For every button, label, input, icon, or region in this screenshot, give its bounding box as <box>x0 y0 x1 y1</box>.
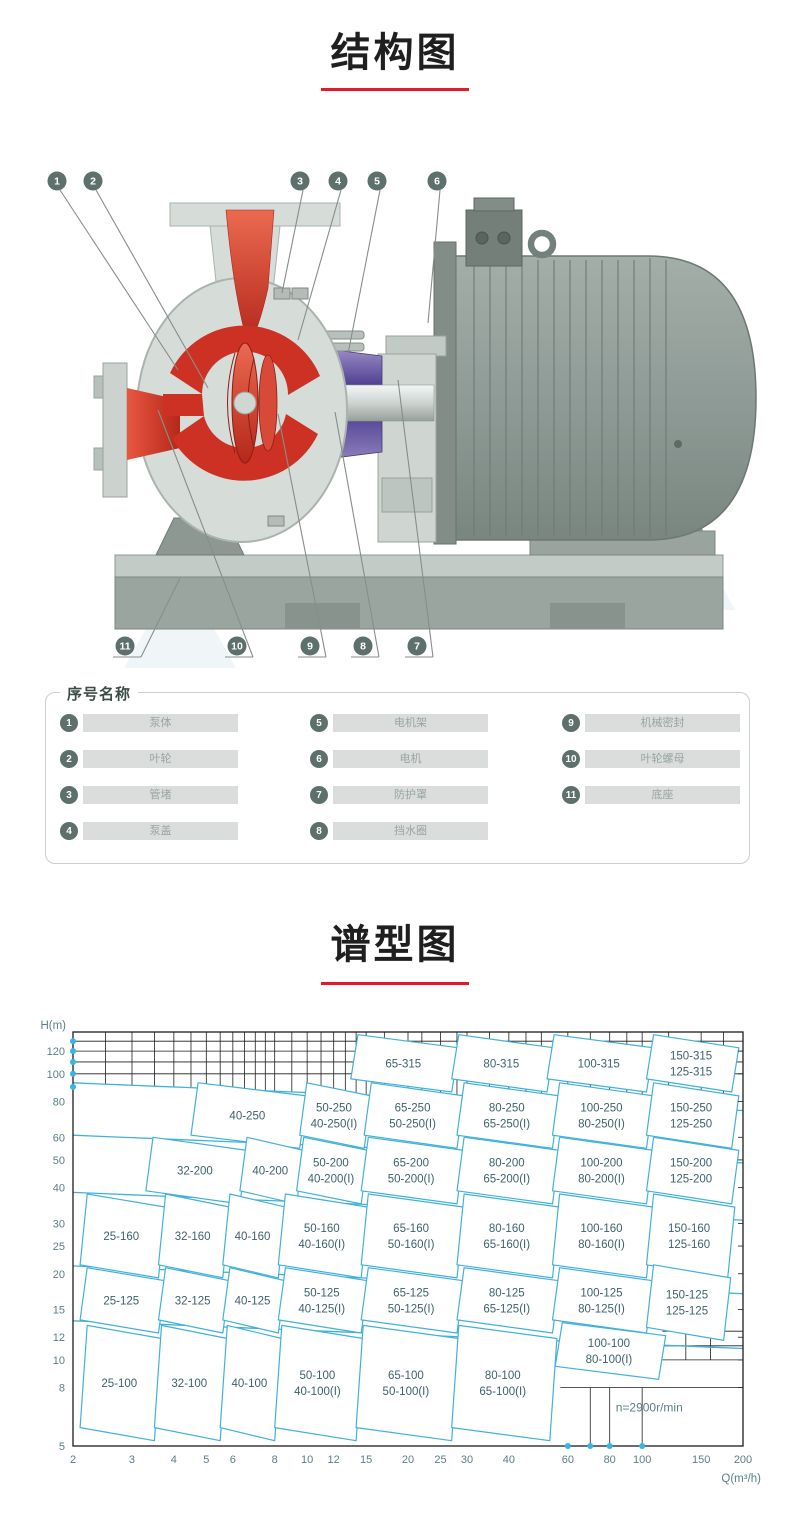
legend-item-11: 11底座 <box>562 785 740 805</box>
y-tick-label: 30 <box>53 1218 65 1230</box>
region-label: 125-125 <box>666 1306 708 1318</box>
region-label: 40-250(I) <box>311 1119 358 1131</box>
x-axis-title: Q(m³/h) <box>721 1473 761 1485</box>
y-tick-label: 10 <box>53 1355 65 1367</box>
region-label: 100-100 <box>588 1338 630 1350</box>
region-label: 65-100 <box>388 1370 424 1382</box>
y-tick-label: 5 <box>59 1441 65 1453</box>
suction-flange <box>103 363 127 497</box>
region-label: 32-160 <box>175 1231 211 1243</box>
legend-item-name: 电机架 <box>333 714 488 732</box>
legend-item-name: 泵体 <box>83 714 238 732</box>
region-label: 150-315 <box>670 1050 712 1062</box>
legend-item-number: 7 <box>310 786 328 804</box>
pump-base <box>115 555 723 629</box>
x-tick-label: 10 <box>301 1454 313 1466</box>
region-50-100 <box>275 1325 364 1440</box>
region-label: 40-100 <box>232 1378 268 1390</box>
region-label: 25-160 <box>103 1231 139 1243</box>
legend-item-number: 1 <box>60 714 78 732</box>
region-label: 40-125(I) <box>298 1303 345 1315</box>
callout-number: 1 <box>54 176 60 188</box>
y-tick-label: 50 <box>53 1155 65 1167</box>
region-label: 32-100 <box>171 1378 207 1390</box>
region-label: 80-125(I) <box>578 1303 625 1315</box>
pump-selection-chart: 65-31580-315100-315150-315125-31540-2505… <box>18 1018 778 1508</box>
y-tick-label: 80 <box>53 1097 65 1109</box>
region-label: 80-250 <box>489 1103 525 1115</box>
region-100-160 <box>553 1194 654 1278</box>
region-label: 150-160 <box>668 1223 710 1235</box>
region-65-160 <box>361 1194 464 1278</box>
region-label: 65-125 <box>393 1287 429 1299</box>
region-label: 65-100(I) <box>479 1386 526 1398</box>
x-tick-label: 2 <box>70 1454 76 1466</box>
region-65-125 <box>361 1268 464 1333</box>
legend-item-number: 6 <box>310 750 328 768</box>
region-label: 40-160 <box>235 1231 271 1243</box>
region-150-125 <box>647 1265 731 1341</box>
legend-item-3: 3管堵 <box>60 785 238 805</box>
region-label: 40-250 <box>229 1111 265 1123</box>
region-label: 150-250 <box>670 1103 712 1115</box>
x-tick-label: 40 <box>503 1454 515 1466</box>
legend-item-name: 机械密封 <box>585 714 740 732</box>
legend-item-2: 2叶轮 <box>60 749 238 769</box>
y-tick-label: 12 <box>53 1332 65 1344</box>
legend-item-8: 8挡水圈 <box>310 821 488 841</box>
legend-item-number: 4 <box>60 822 78 840</box>
callout-number: 7 <box>414 641 420 653</box>
region-label: 65-125(I) <box>483 1303 530 1315</box>
y-tick-label: 15 <box>53 1305 65 1317</box>
motor <box>434 198 756 544</box>
x-tick-label: 6 <box>230 1454 236 1466</box>
callout-number: 8 <box>360 641 366 653</box>
x-tick-label: 4 <box>171 1454 177 1466</box>
region-label: 80-200(I) <box>578 1174 625 1186</box>
legend-item-number: 2 <box>60 750 78 768</box>
region-label: 65-200(I) <box>483 1174 530 1186</box>
callout-number: 2 <box>90 176 96 188</box>
structure-title-underline <box>321 88 469 91</box>
x-tick-label: 15 <box>360 1454 372 1466</box>
y-tick-label: 40 <box>53 1183 65 1195</box>
legend-item-7: 7防护罩 <box>310 785 488 805</box>
region-label: 100-160 <box>580 1223 622 1235</box>
x-tick-label: 30 <box>461 1454 473 1466</box>
speed-annotation: n=2900r/min <box>616 1401 683 1415</box>
legend-item-10: 10叶轮螺母 <box>562 749 740 769</box>
region-50-160 <box>278 1194 368 1278</box>
region-label: 50-100 <box>299 1370 335 1382</box>
motor-bracket <box>378 336 446 542</box>
region-label: 80-160 <box>489 1223 525 1235</box>
region-label: 40-125 <box>235 1295 271 1307</box>
x-tick-label: 60 <box>562 1454 574 1466</box>
region-label: 80-160(I) <box>578 1239 625 1251</box>
region-100-100 <box>555 1323 666 1380</box>
region-label: 80-100(I) <box>586 1354 633 1366</box>
region-label: 125-315 <box>670 1066 712 1078</box>
region-label: 125-200 <box>670 1174 712 1186</box>
region-label: 65-315 <box>385 1058 421 1070</box>
legend-item-number: 8 <box>310 822 328 840</box>
legend-item-number: 11 <box>562 786 580 804</box>
y-tick-label: 60 <box>53 1132 65 1144</box>
region-label: 80-125 <box>489 1287 525 1299</box>
legend-item-name: 管堵 <box>83 786 238 804</box>
callout-number: 4 <box>335 176 341 188</box>
region-label: 125-250 <box>670 1119 712 1131</box>
region-label: 100-250 <box>580 1103 622 1115</box>
region-label: 40-160(I) <box>298 1239 345 1251</box>
region-label: 25-100 <box>101 1378 137 1390</box>
region-label: 100-200 <box>580 1158 622 1170</box>
structure-section-title: 结构图 <box>0 20 790 78</box>
region-label: 32-125 <box>175 1295 211 1307</box>
callout-number: 3 <box>297 176 303 188</box>
region-label: 65-160 <box>393 1223 429 1235</box>
parts-legend: 序号名称 1泵体2叶轮3管堵4泵盖5电机架6电机7防护罩8挡水圈9机械密封10叶… <box>45 692 750 864</box>
region-label: 150-125 <box>666 1290 708 1302</box>
x-tick-label: 80 <box>604 1454 616 1466</box>
legend-item-4: 4泵盖 <box>60 821 238 841</box>
motor-front-plate <box>434 242 456 544</box>
callout-number: 11 <box>119 641 130 653</box>
region-label: 65-200 <box>393 1158 429 1170</box>
region-80-100 <box>452 1325 557 1440</box>
region-label: 50-100(I) <box>383 1386 430 1398</box>
region-label: 100-125 <box>580 1287 622 1299</box>
pipe-plug <box>274 288 290 299</box>
callout-number: 5 <box>374 176 380 188</box>
region-label: 65-250 <box>395 1103 431 1115</box>
y-tick-label: 8 <box>59 1383 65 1395</box>
region-label: 40-200 <box>252 1166 288 1178</box>
y-tick-label: 120 <box>47 1046 65 1058</box>
pump-structure-figure: 1234561110987 <box>30 148 780 678</box>
callout-number: 10 <box>231 641 243 653</box>
legend-item-number: 3 <box>60 786 78 804</box>
region-label: 80-315 <box>483 1058 519 1070</box>
legend-item-name: 叶轮螺母 <box>585 750 740 768</box>
x-tick-label: 150 <box>692 1454 710 1466</box>
region-label: 50-125(I) <box>388 1303 435 1315</box>
legend-item-name: 底座 <box>585 786 740 804</box>
callout-number: 6 <box>434 176 440 188</box>
lifting-eye <box>531 233 553 255</box>
region-label: 40-100(I) <box>294 1386 341 1398</box>
region-80-125 <box>457 1268 560 1333</box>
legend-item-name: 泵盖 <box>83 822 238 840</box>
legend-item-name: 挡水圈 <box>333 822 488 840</box>
legend-item-number: 9 <box>562 714 580 732</box>
x-tick-label: 12 <box>328 1454 340 1466</box>
spectrum-section-title: 谱型图 <box>0 912 790 970</box>
region-label: 65-160(I) <box>483 1239 530 1251</box>
x-tick-label: 5 <box>203 1454 209 1466</box>
region-label: 150-200 <box>670 1158 712 1170</box>
x-tick-label: 3 <box>129 1454 135 1466</box>
region-label: 50-160(I) <box>388 1239 435 1251</box>
region-label: 50-160 <box>304 1223 340 1235</box>
legend-item-6: 6电机 <box>310 749 488 769</box>
legend-item-1: 1泵体 <box>60 713 238 733</box>
model-regions: 65-31580-315100-315150-315125-31540-2505… <box>80 1035 739 1441</box>
spectrum-title-underline <box>321 982 469 985</box>
y-tick-label: 20 <box>53 1269 65 1281</box>
region-label: 100-315 <box>578 1058 620 1070</box>
legend-item-name: 防护罩 <box>333 786 488 804</box>
y-axis-title: H(m) <box>40 1020 66 1032</box>
x-tick-label: 200 <box>734 1454 752 1466</box>
legend-item-5: 5电机架 <box>310 713 488 733</box>
region-label: 25-125 <box>103 1295 139 1307</box>
x-tick-label: 25 <box>434 1454 446 1466</box>
region-label: 50-200 <box>313 1158 349 1170</box>
region-label: 125-160 <box>668 1239 710 1251</box>
x-tick-label: 100 <box>633 1454 651 1466</box>
y-tick-label: 25 <box>53 1241 65 1253</box>
region-label: 80-200 <box>489 1158 525 1170</box>
legend-item-number: 5 <box>310 714 328 732</box>
legend-item-name: 电机 <box>333 750 488 768</box>
region-65-100 <box>356 1325 459 1440</box>
region-label: 80-100 <box>485 1370 521 1382</box>
legend-item-number: 10 <box>562 750 580 768</box>
region-80-160 <box>457 1194 560 1278</box>
region-label: 80-250(I) <box>578 1119 625 1131</box>
legend-item-name: 叶轮 <box>83 750 238 768</box>
y-tick-label: 100 <box>47 1069 65 1081</box>
region-label: 65-250(I) <box>483 1119 530 1131</box>
x-tick-label: 20 <box>402 1454 414 1466</box>
region-label: 50-200(I) <box>388 1174 435 1186</box>
region-label: 50-125 <box>304 1287 340 1299</box>
terminal-box <box>466 210 522 266</box>
legend-title: 序号名称 <box>60 683 138 704</box>
x-tick-label: 8 <box>272 1454 278 1466</box>
pump-cross-section-drawing: 1234561110987 <box>30 148 780 678</box>
region-label: 32-200 <box>177 1166 213 1178</box>
region-label: 50-250 <box>316 1103 352 1115</box>
region-label: 40-200(I) <box>308 1174 355 1186</box>
selection-chart-svg: 65-31580-315100-315150-315125-31540-2505… <box>18 1018 778 1508</box>
legend-item-9: 9机械密封 <box>562 713 740 733</box>
callout-number: 9 <box>307 641 313 653</box>
region-label: 50-250(I) <box>389 1119 436 1131</box>
